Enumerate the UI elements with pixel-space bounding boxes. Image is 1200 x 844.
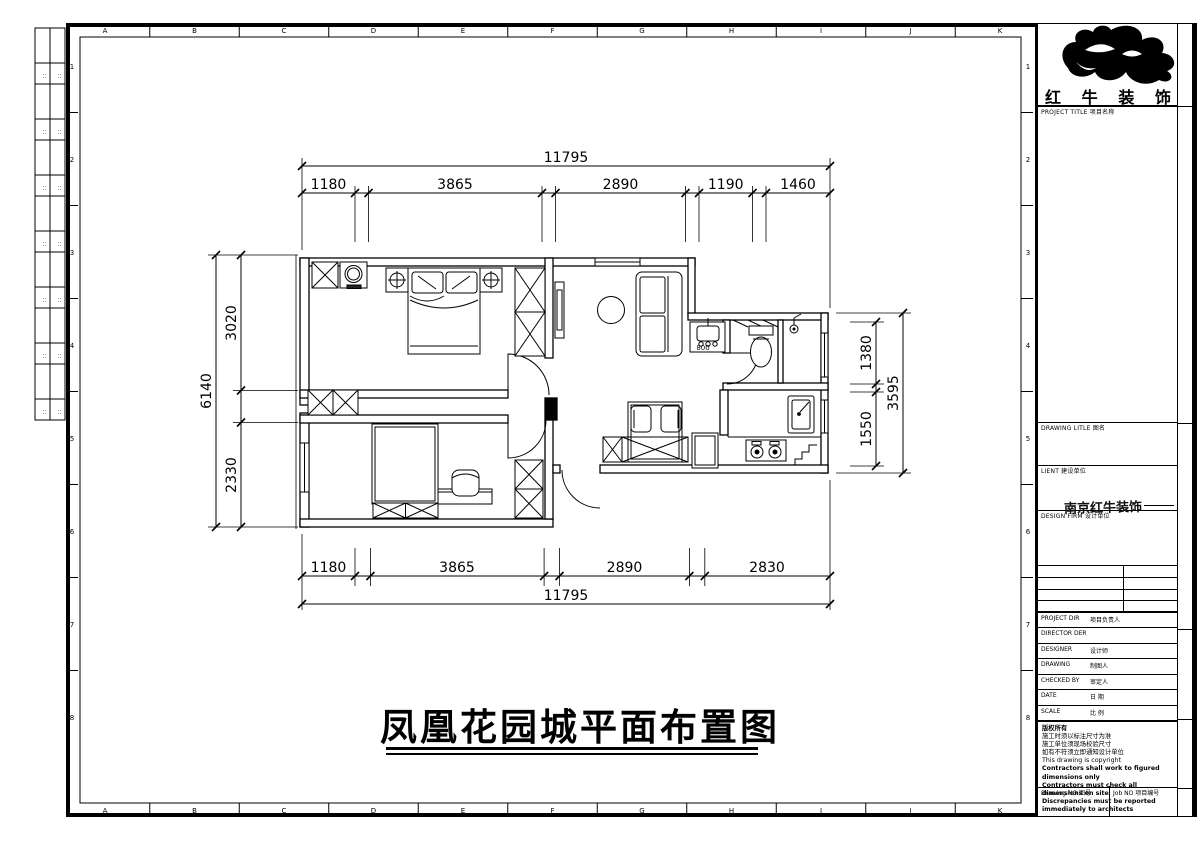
entry-door — [562, 470, 600, 508]
dimension-value: 1460 — [780, 177, 816, 193]
sofa — [636, 272, 682, 356]
note-line: 版权所有 — [1042, 725, 1177, 733]
kitchen-fixtures — [728, 395, 821, 465]
single-bed — [372, 424, 438, 504]
grid-letter-top: D — [371, 27, 376, 35]
grid-number-left: 7 — [70, 621, 74, 629]
dimension-value: 2330 — [224, 457, 240, 493]
strip-cell-text: ∷ — [41, 242, 48, 246]
dimension-value: 11795 — [544, 588, 589, 604]
project-title-box: PROJECT TITLE 项目名称 — [1038, 107, 1177, 423]
dimension-value: 1180 — [311, 177, 347, 193]
copyright-notes: 版权所有施工时须以标注尺寸为准施工单位须现场校验尺寸如有不符须立即通知设计单位T… — [1038, 721, 1177, 788]
title-underline-thin — [386, 753, 758, 755]
dimension-value: 1190 — [708, 177, 744, 193]
grid-number-left: 3 — [70, 249, 74, 257]
dimension-value: 3865 — [439, 560, 475, 576]
drawing-title-label: DRAWING LITLE 图名 — [1038, 423, 1177, 432]
grid-letter-bottom: C — [282, 807, 287, 815]
title-block-main: 红牛 装饰 PROJECT TITLE 项目名称 DRAWING LITLE 图… — [1038, 24, 1178, 816]
grid-number-right: 7 — [1026, 621, 1030, 629]
strip-cell-text: ∷ — [56, 242, 63, 246]
grid-letter-top: B — [192, 27, 197, 35]
title-block-row-date: DATE日 期 — [1038, 690, 1177, 705]
grid-letter-top: I — [820, 27, 822, 35]
grid-letter-top: G — [639, 27, 644, 35]
grid-letter-top: C — [282, 27, 287, 35]
grid-number-right: 8 — [1026, 714, 1030, 722]
grid-number-left: 2 — [70, 156, 74, 164]
title-block-row-scale: SCALE比 例 — [1038, 706, 1177, 721]
revision-strip: ∷∷∷∷∷∷∷∷∷∷∷∷∷∷ — [35, 28, 65, 420]
number-row: Drawing NO 图号 Job NO 项目编号 — [1038, 786, 1177, 816]
grid-letter-bottom: D — [371, 807, 376, 815]
grid-letter-bottom: B — [192, 807, 197, 815]
note-line: 施工时须以标注尺寸为准 — [1042, 733, 1177, 741]
dimension-value: 2890 — [607, 560, 643, 576]
note-line: 如有不符须立即通知设计单位 — [1042, 749, 1177, 757]
dimension-value: 2890 — [603, 177, 639, 193]
strip-cell-text: ∷ — [41, 74, 48, 78]
column-boxes — [308, 390, 358, 415]
grid-letter-bottom: A — [103, 807, 108, 815]
strip-cell-text: ∷ — [56, 186, 63, 190]
strip-cell-text: ∷ — [41, 354, 48, 358]
job-no-label: Job NO 项目编号 — [1110, 786, 1177, 816]
grid-letter-top: K — [998, 27, 1003, 35]
dimension-value: 6140 — [199, 373, 215, 409]
grid-letter-bottom: H — [729, 807, 734, 815]
grid-number-left: 1 — [70, 63, 74, 71]
title-block: 红牛 装饰 PROJECT TITLE 项目名称 DRAWING LITLE 图… — [1035, 23, 1193, 817]
gas-stove — [746, 440, 786, 461]
strip-cell-text: ∷ — [56, 298, 63, 302]
grid-letter-bottom: G — [639, 807, 644, 815]
design-firm-stamp: 南京红牛装饰 — [1064, 496, 1142, 517]
dining-sideboard — [603, 437, 688, 462]
grid-letter-top: J — [908, 27, 911, 35]
kitchen-sink — [788, 396, 814, 433]
washing-machine — [340, 262, 367, 289]
grid-number-right: 5 — [1026, 435, 1030, 443]
grid-letter-top: H — [729, 27, 734, 35]
furniture-second-bedroom — [372, 424, 543, 518]
low-cabinet — [373, 503, 438, 518]
title-block-row-project-dir: PROJECT DIR项目负责人 — [1038, 613, 1177, 628]
double-bed — [408, 268, 480, 354]
drawing-title-text: 凤凰花园城平面布置图 — [380, 697, 762, 751]
vanity-width-label: 800 — [696, 344, 709, 352]
title-block-rows: PROJECT DIR项目负责人DIRECTOR DERDESIGNER设计师D… — [1038, 613, 1177, 721]
grid-letter-top: F — [550, 27, 554, 35]
title-block-row-director-der: DIRECTOR DER — [1038, 628, 1177, 643]
dining-chairs — [631, 406, 681, 432]
grid-number-right: 2 — [1026, 156, 1030, 164]
grid-letter-bottom: J — [908, 807, 911, 815]
dimension-value: 2830 — [749, 560, 785, 576]
entry-steps — [795, 445, 817, 465]
stamp-dash — [1144, 505, 1174, 506]
title-block-row-checked-by: CHECKED BY审定人 — [1038, 675, 1177, 690]
strip-cell-text: ∷ — [41, 130, 48, 134]
grid-letter-top: A — [103, 27, 108, 35]
title-block-side-column — [1178, 24, 1192, 816]
client-label: LIENT 建设单位 — [1038, 466, 1177, 475]
title-block-row-designer: DESIGNER设计师 — [1038, 644, 1177, 659]
drawing-sheet: { "sheet": { "grid_letters": ["A","B","C… — [0, 0, 1200, 844]
dimension-value: 1380 — [859, 335, 875, 371]
bull-logo-icon — [1038, 24, 1178, 86]
hall-cabinet — [692, 433, 718, 468]
note-line: This drawing is copyright — [1042, 757, 1177, 765]
grid-letter-bottom: E — [461, 807, 465, 815]
strip-cell-text: ∷ — [56, 130, 63, 134]
dimension-value: 3595 — [886, 375, 902, 411]
dimension-value: 3020 — [224, 305, 240, 341]
dimension-value: 11795 — [544, 150, 589, 166]
grid-number-right: 4 — [1026, 342, 1031, 350]
brand-name: 红牛 装饰 — [1038, 86, 1178, 107]
grid-number-left: 8 — [70, 714, 74, 722]
drawing-no-label: Drawing NO 图号 — [1038, 786, 1110, 816]
bathroom-fixtures — [690, 314, 801, 367]
grid-number-right: 6 — [1026, 528, 1031, 536]
round-table — [598, 297, 625, 324]
grid-number-right: 3 — [1026, 249, 1030, 257]
desk-chair — [452, 470, 479, 496]
strip-cell-text: ∷ — [41, 410, 48, 414]
master-wardrobe — [515, 268, 545, 356]
dimension-value: 1180 — [311, 560, 347, 576]
strip-cell-text: ∷ — [56, 354, 63, 358]
grid-number-left: 4 — [70, 342, 75, 350]
master-bedroom-door — [508, 354, 549, 395]
grid-number-left: 6 — [70, 528, 75, 536]
strip-cell-text: ∷ — [41, 298, 48, 302]
grid-number-right: 1 — [1026, 63, 1030, 71]
dimension-value: 3865 — [437, 177, 473, 193]
nightstand-left — [386, 268, 408, 292]
strip-cell-text: ∷ — [41, 186, 48, 190]
grid-letter-bottom: F — [550, 807, 554, 815]
nightstand-right — [480, 268, 502, 292]
strip-cell-text: ∷ — [56, 74, 63, 78]
tv-cabinet — [555, 282, 564, 338]
grid-letter-top: E — [461, 27, 465, 35]
grid-letter-bottom: I — [820, 807, 822, 815]
toilet — [749, 326, 773, 367]
design-firm-box: 南京红牛装饰 DESIGN FIRM 设计单位 — [1038, 511, 1177, 566]
title-block-row-drawing: DRAWING制图人 — [1038, 659, 1177, 674]
strip-cell-text: ∷ — [56, 410, 63, 414]
dimension-value: 1550 — [859, 411, 875, 447]
drawing-title-box: DRAWING LITLE 图名 — [1038, 423, 1177, 466]
title-underline-thick — [386, 747, 758, 750]
grid-letter-bottom: K — [998, 807, 1003, 815]
note-line: Contractors shall work to figured dimens… — [1042, 765, 1177, 781]
project-title-label: PROJECT TITLE 项目名称 — [1038, 107, 1177, 116]
grid-number-left: 5 — [70, 435, 74, 443]
signature-table — [1038, 566, 1177, 613]
second-bedroom-door — [508, 420, 546, 458]
bedroom2-wardrobe — [515, 460, 543, 518]
